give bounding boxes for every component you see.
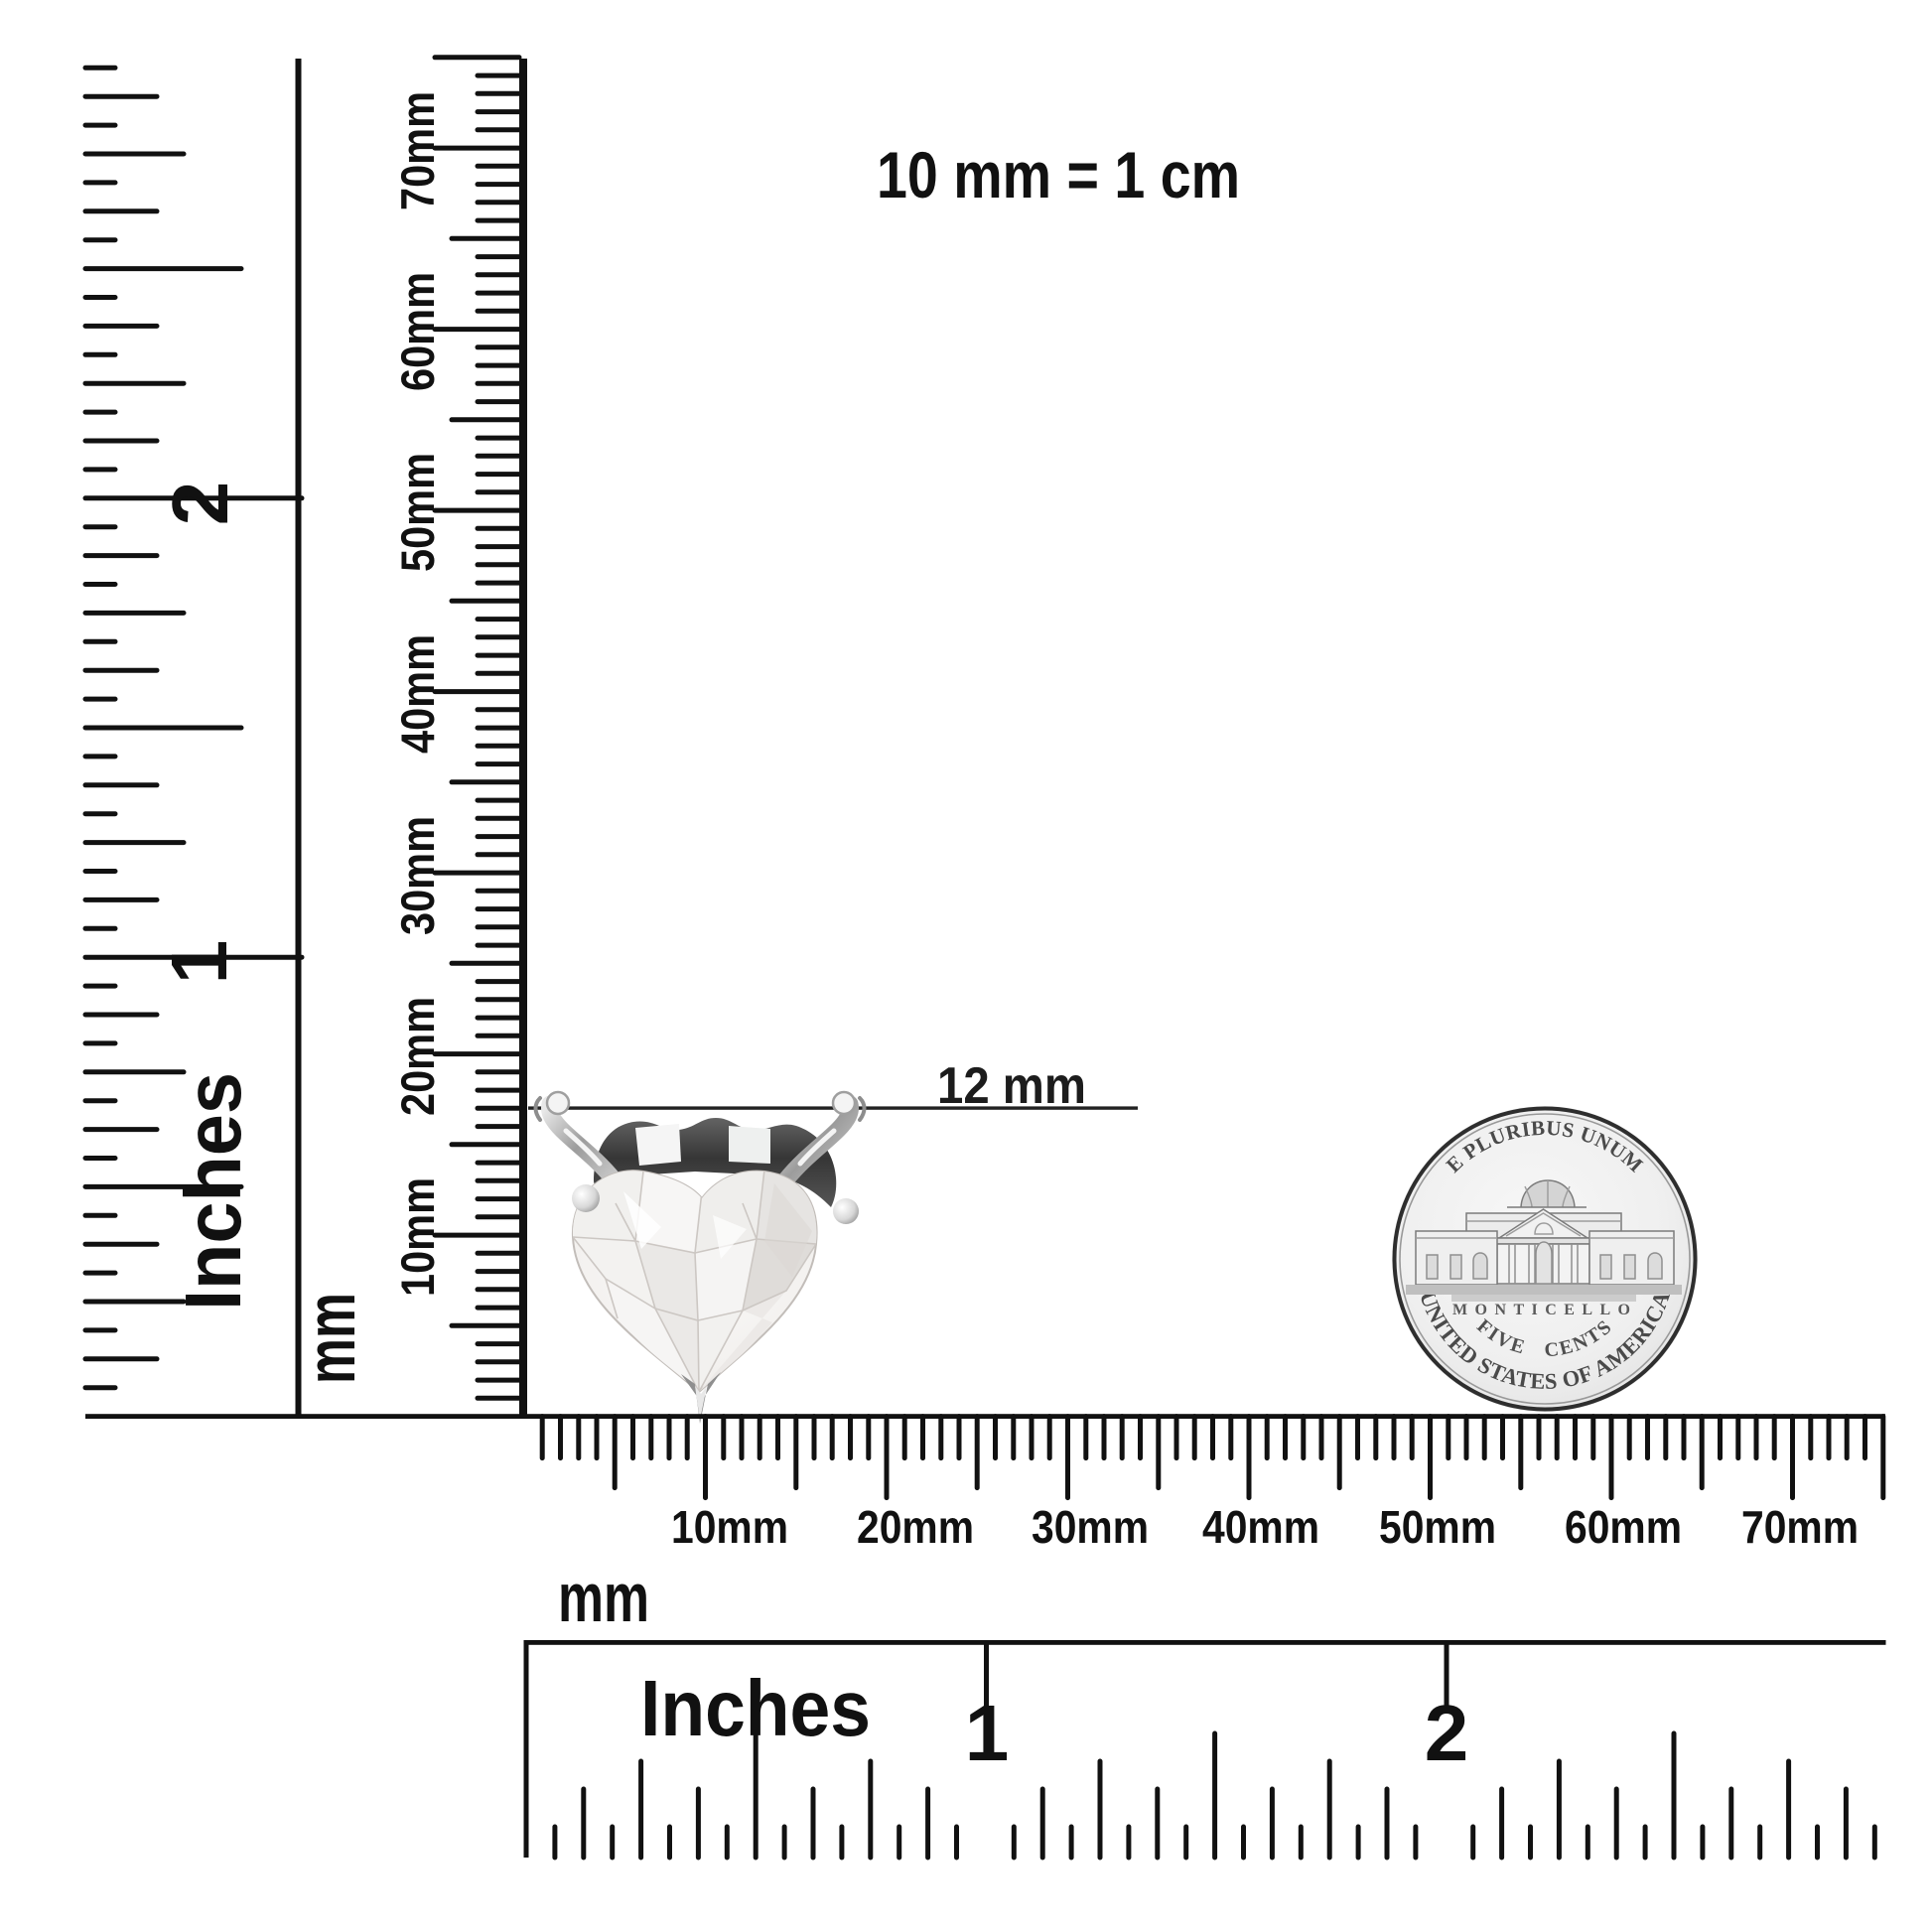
svg-text:50mm: 50mm bbox=[1379, 1501, 1496, 1553]
svg-text:60mm: 60mm bbox=[391, 272, 444, 391]
svg-text:20mm: 20mm bbox=[857, 1501, 974, 1553]
svg-text:1: 1 bbox=[965, 1689, 1010, 1777]
svg-text:MONTICELLO: MONTICELLO bbox=[1452, 1302, 1637, 1318]
svg-text:30mm: 30mm bbox=[1032, 1501, 1149, 1553]
svg-text:20mm: 20mm bbox=[391, 997, 444, 1116]
svg-text:70mm: 70mm bbox=[1741, 1501, 1859, 1553]
svg-text:50mm: 50mm bbox=[391, 453, 444, 572]
svg-text:70mm: 70mm bbox=[391, 91, 444, 210]
svg-text:40mm: 40mm bbox=[391, 634, 444, 754]
svg-text:10 mm = 1 cm: 10 mm = 1 cm bbox=[877, 138, 1240, 211]
svg-text:mm: mm bbox=[558, 1559, 649, 1636]
svg-text:10mm: 10mm bbox=[671, 1501, 788, 1553]
svg-text:12 mm: 12 mm bbox=[937, 1057, 1086, 1115]
svg-text:10mm: 10mm bbox=[391, 1177, 444, 1297]
svg-text:2: 2 bbox=[1425, 1689, 1469, 1777]
svg-text:60mm: 60mm bbox=[1565, 1501, 1682, 1553]
svg-text:30mm: 30mm bbox=[391, 816, 444, 935]
svg-text:Inches: Inches bbox=[640, 1664, 871, 1752]
svg-text:2: 2 bbox=[156, 482, 244, 526]
svg-text:Inches: Inches bbox=[169, 1072, 257, 1311]
svg-text:mm: mm bbox=[292, 1293, 369, 1384]
svg-text:40mm: 40mm bbox=[1202, 1501, 1319, 1553]
svg-text:1: 1 bbox=[155, 940, 243, 985]
